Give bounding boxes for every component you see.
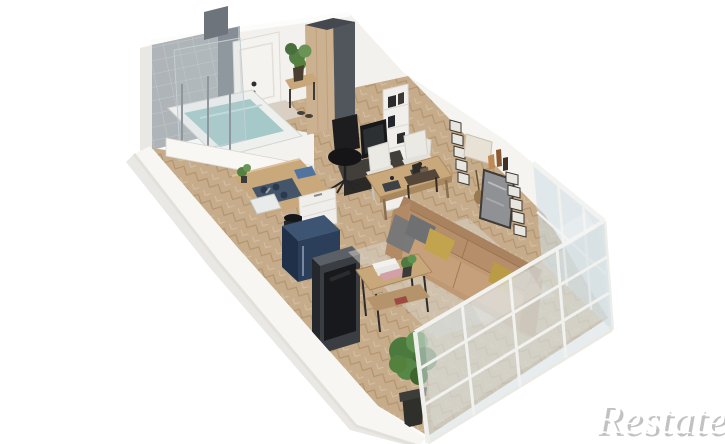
vase [503, 157, 508, 171]
foliage [408, 255, 417, 264]
plant-pot [241, 176, 247, 183]
chair-seat [328, 148, 362, 166]
pot-top [284, 214, 302, 222]
wall-pillar [204, 6, 228, 40]
console-leg [436, 177, 437, 192]
apartment-render: Restate Restate [0, 0, 725, 444]
w-edge-strip [140, 45, 152, 154]
plant-pot [293, 65, 304, 82]
cup [390, 176, 394, 180]
console-leg [408, 185, 409, 200]
wardrobe-side [333, 18, 355, 128]
shelf-item [388, 95, 396, 108]
watermark-text: Restate [595, 397, 725, 443]
burner [281, 192, 288, 199]
door-handle [252, 82, 257, 87]
shoe [297, 111, 305, 115]
shelf-item [398, 92, 404, 105]
tv-panel [312, 246, 360, 354]
watermark: Restate Restate [595, 397, 725, 444]
foliage [285, 43, 297, 55]
shelf-item [388, 115, 395, 128]
vase [488, 154, 495, 170]
foliage [389, 355, 407, 373]
floorplan-canvas: Restate Restate [0, 0, 725, 444]
shower-glass-screen [174, 38, 246, 154]
burner [273, 184, 280, 191]
chair-back [332, 114, 360, 154]
shoe [305, 114, 313, 118]
foliage [243, 164, 251, 172]
vase [496, 149, 502, 167]
foliage [299, 45, 312, 58]
